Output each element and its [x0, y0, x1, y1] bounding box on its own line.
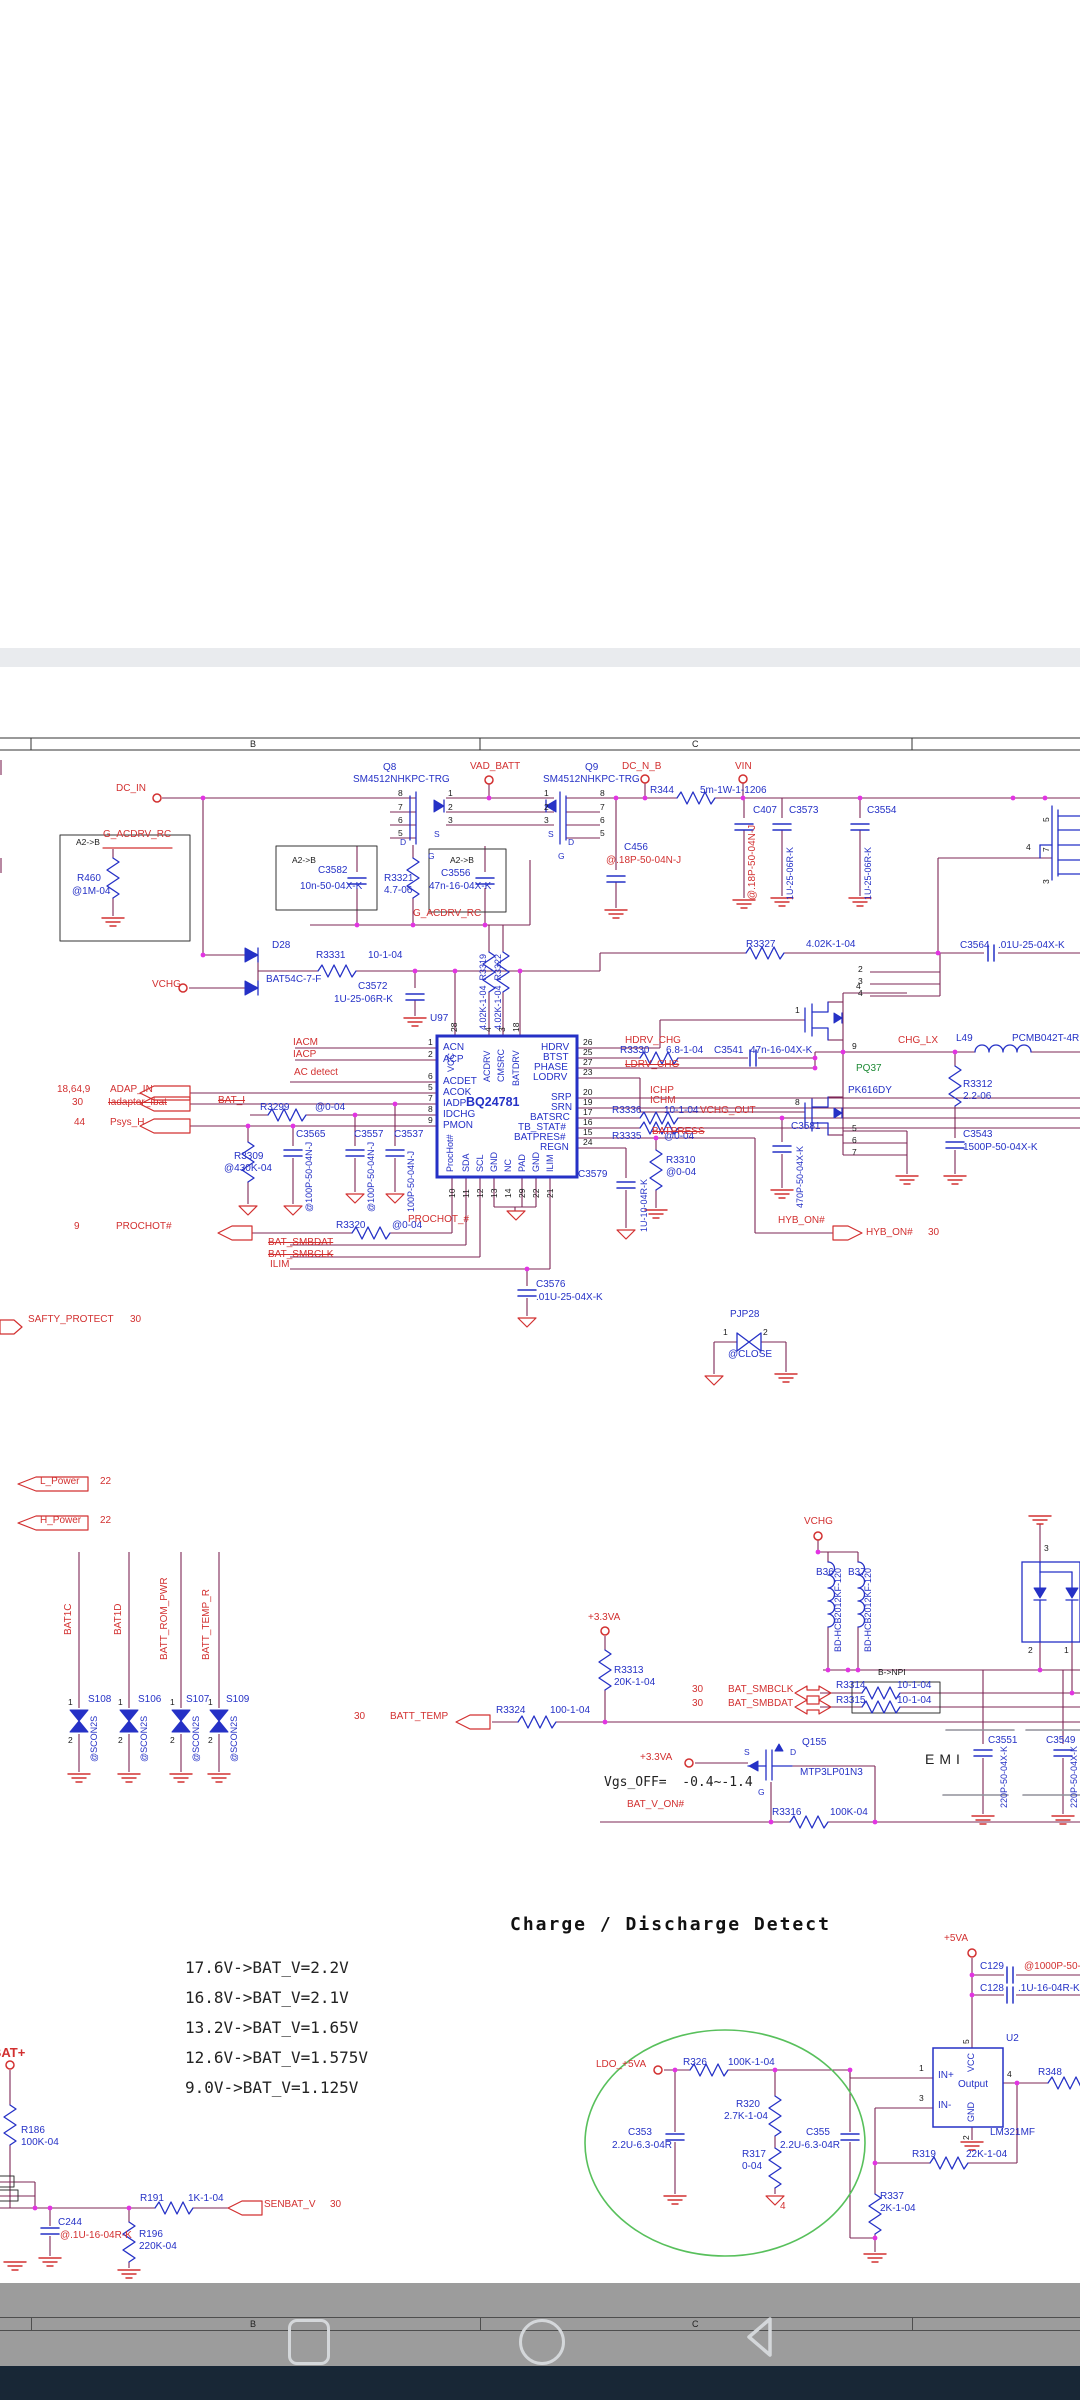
home-circle-icon: [519, 2319, 565, 2365]
back-triangle-icon: [745, 2315, 775, 2359]
back-button[interactable]: [745, 2315, 775, 2362]
android-nav-bar: B C: [0, 2283, 1080, 2366]
recents-button[interactable]: [288, 2319, 330, 2365]
grid-tick: [912, 2318, 913, 2330]
recents-square-icon: [288, 2319, 330, 2365]
grid-ref-top-c: C: [692, 739, 699, 749]
home-button[interactable]: [519, 2319, 565, 2365]
phone-screen: DC_INQ8SM4512NHKPC-TRGVAD_BATTQ9SM4512NH…: [0, 0, 1080, 2400]
schematic-drawing: [0, 0, 1080, 2400]
bottom-inset-bar: [0, 2366, 1080, 2400]
grid-ref-bottom-c: C: [692, 2319, 699, 2329]
grid-tick: [480, 2318, 481, 2330]
grid-ref-bottom-b: B: [250, 2319, 256, 2329]
grid-ref-top-b: B: [250, 739, 256, 749]
grid-tick: [31, 2318, 32, 2330]
schematic-sheet[interactable]: DC_INQ8SM4512NHKPC-TRGVAD_BATTQ9SM4512NH…: [0, 0, 1080, 2400]
